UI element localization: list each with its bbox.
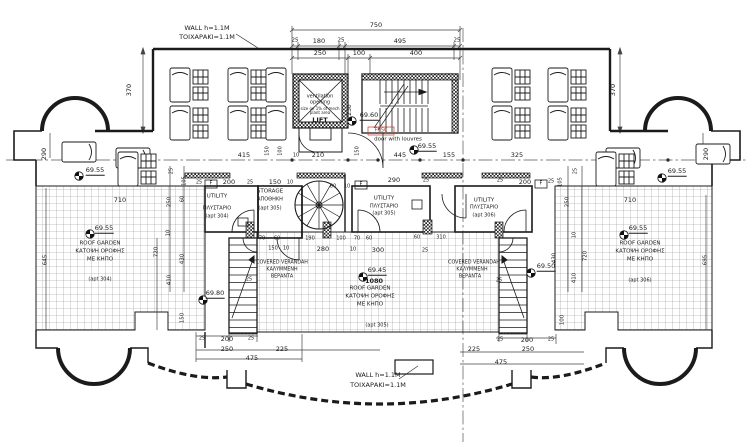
- sun-lounger: [118, 152, 156, 186]
- sun-lounger: [492, 106, 530, 140]
- benchmark-69-55-rgarden: [620, 231, 628, 239]
- frsc-box: [368, 127, 394, 135]
- balcony-curves: [36, 330, 712, 404]
- sun-lounger: [228, 68, 266, 102]
- sun-lounger: [696, 144, 730, 164]
- benchmark-69-55-rterrace: [658, 174, 666, 182]
- sun-lounger: [266, 68, 286, 102]
- lift: [293, 74, 348, 152]
- furniture: [62, 68, 730, 186]
- sun-lounger: [228, 106, 266, 140]
- plan-linework: [0, 0, 753, 447]
- sun-lounger: [62, 142, 96, 162]
- benchmark-69-50-rstair: [527, 269, 535, 277]
- spiral-staircase: [295, 181, 343, 229]
- sun-lounger: [548, 106, 586, 140]
- roof-garden-right-hatch: [555, 186, 712, 330]
- sun-lounger: [548, 68, 586, 102]
- sun-lounger: [492, 68, 530, 102]
- stair-lower-right: [499, 238, 527, 333]
- hatch-areas: [36, 186, 712, 332]
- sun-lounger: [596, 152, 634, 186]
- benchmark-69-55-door: [410, 146, 418, 154]
- benchmark-69-60: [348, 117, 356, 125]
- sun-lounger: [170, 68, 208, 102]
- roof-garden-left-hatch: [36, 186, 205, 330]
- benchmark-69-55-lterrace: [75, 172, 83, 180]
- stairwell-top: [362, 74, 458, 133]
- stair-lower-left: [229, 238, 257, 333]
- sun-lounger: [266, 106, 286, 140]
- benchmark-69-55-lgarden: [86, 230, 94, 238]
- verandah-center-hatch: [257, 232, 499, 332]
- benchmark-69-80-lstair: [199, 296, 207, 304]
- sun-lounger: [170, 106, 208, 140]
- benchmark-69-45-center: [359, 273, 367, 281]
- floor-plan-drawing: WALL h=1.1MΤΟΙΧΑΡΑΚΙ=1.1MWALL h=1.1MΤΟΙΧ…: [0, 0, 753, 447]
